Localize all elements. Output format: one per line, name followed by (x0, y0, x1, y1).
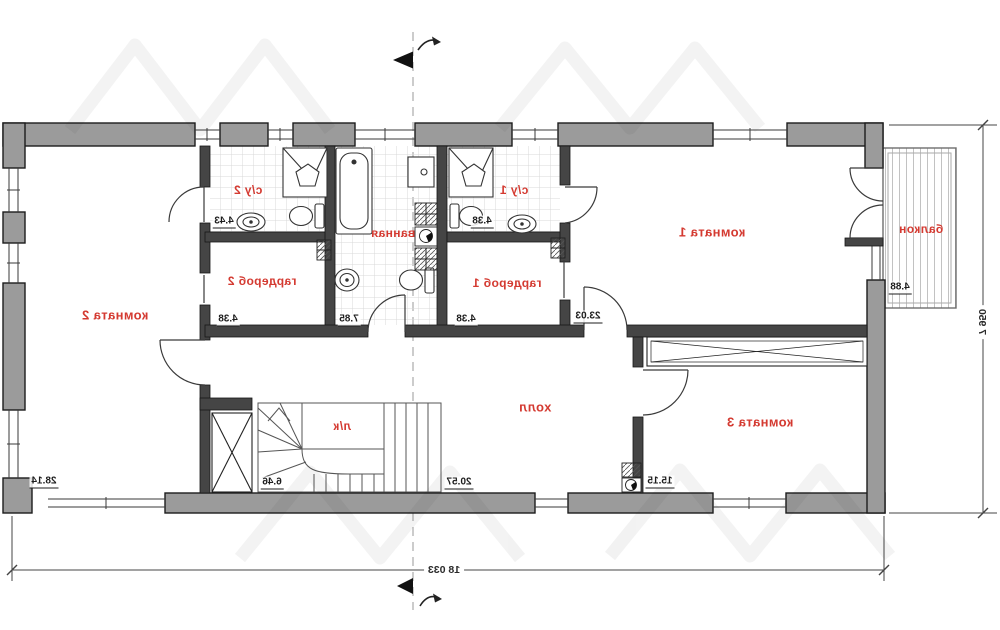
staircase (258, 403, 441, 492)
area-label-kholl: 20.57 (444, 477, 473, 490)
sink-su2 (237, 213, 265, 231)
vent-shaft-bathroom (415, 203, 437, 270)
area-label-komnata1: 23.03 (573, 311, 602, 324)
sink-su1 (508, 215, 536, 233)
area-label-komnata3: 15.15 (645, 476, 674, 489)
room-label-komnata3: комната 3 (727, 415, 794, 430)
room-label-balkon: балкон (899, 222, 944, 236)
wardrobe-unit (647, 337, 867, 366)
area-label-lk: 6.46 (260, 477, 283, 490)
door-su1 (565, 187, 597, 223)
door-komnata2 (160, 340, 205, 385)
shower-su2 (283, 148, 327, 197)
area-label-komnata2: 28.14 (29, 476, 58, 489)
area-label-garderob1: 4.38 (454, 314, 477, 327)
bathtub (336, 148, 372, 234)
room-label-su1: с/у 1 (500, 183, 529, 197)
elevator-shaft (212, 413, 252, 492)
floor-plan: комната 2 с/у 2 гардероб 2 ванная с/у 1 … (0, 0, 1000, 630)
balcony-french-doors (850, 168, 883, 238)
axis-triangle-top (393, 52, 413, 69)
dimension-right: 7 950 (976, 305, 988, 339)
vent-shaft-right (551, 238, 565, 258)
area-label-su1: 4.38 (470, 216, 493, 229)
door-komnata3 (643, 370, 688, 415)
room-label-komnata1: комната 1 (679, 225, 746, 240)
shower-su1 (449, 148, 493, 197)
door-komnata1 (584, 287, 627, 330)
floor-plan-drawing (0, 0, 1000, 630)
dimension-bottom: 18 033 (424, 564, 464, 576)
area-label-vannaya: 7.85 (337, 314, 360, 327)
room-label-vannaya: ванная (371, 226, 415, 240)
window (872, 245, 880, 280)
room-label-garderob1: гардероб 1 (472, 276, 541, 290)
sink-bathroom (335, 269, 359, 291)
axis-triangle-bottom (397, 578, 413, 594)
area-label-garderob2: 4.38 (216, 314, 239, 327)
toilet-su2 (290, 204, 325, 228)
washing-machine (408, 157, 434, 187)
room-label-garderob2: гардероб 2 (227, 274, 296, 288)
room-label-kholl: холл (519, 400, 552, 415)
vent-shaft-left (317, 240, 331, 260)
area-label-su2: 4.43 (212, 216, 235, 229)
door-su2 (169, 187, 204, 222)
room-label-su2: с/у 2 (234, 183, 263, 197)
room-label-lk: л/к (333, 419, 351, 433)
watermark (70, 45, 890, 558)
room-label-komnata2: комната 2 (82, 308, 149, 323)
area-label-balkon: 4.88 (888, 282, 911, 295)
